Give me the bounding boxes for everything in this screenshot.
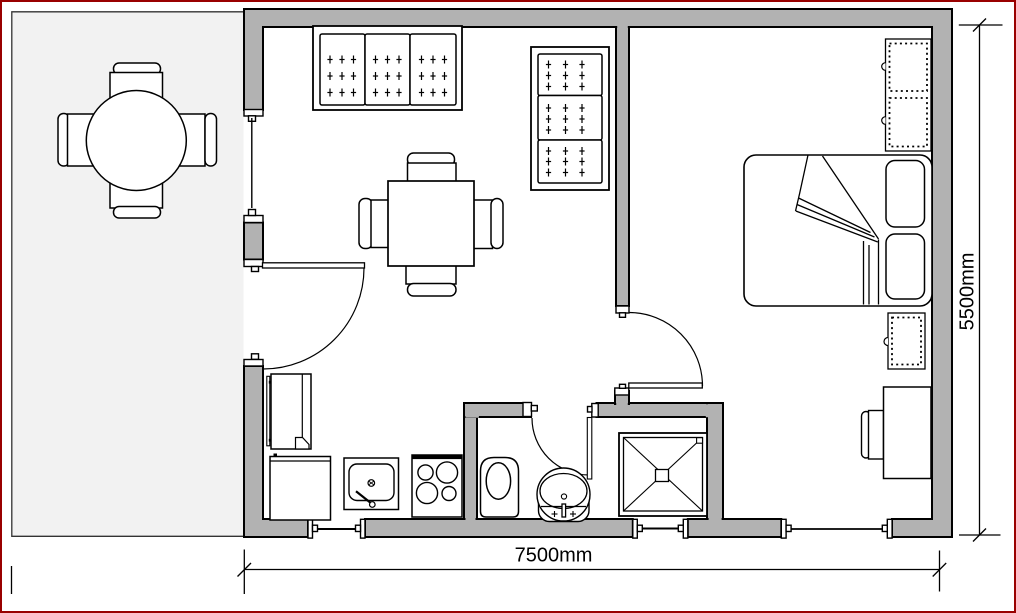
- svg-text:5500mm: 5500mm: [957, 253, 979, 331]
- svg-text:7500mm: 7500mm: [515, 545, 593, 567]
